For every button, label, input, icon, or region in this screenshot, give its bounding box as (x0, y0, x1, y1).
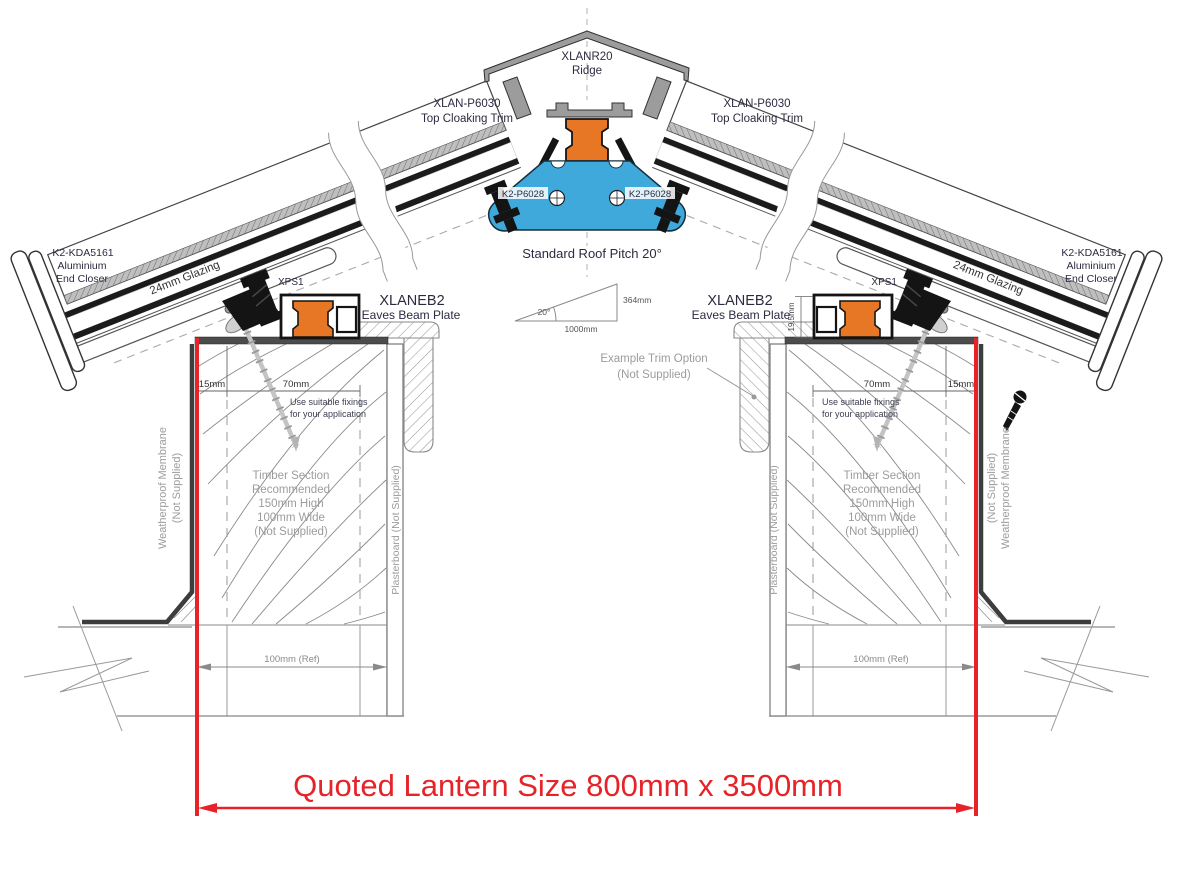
eaves-beam-part-right: XLANEB2 (707, 293, 772, 309)
dim-70mm-right: 70mm (864, 379, 890, 390)
eaves-beam-part-left: XLANEB2 (379, 293, 444, 309)
trim-option-line1: Example Trim Option (600, 353, 707, 365)
membrane-note-2-left: (Not Supplied) (171, 453, 183, 523)
dim-15mm-right: 15mm (948, 379, 974, 390)
timber-note-4-left: 100mm Wide (257, 512, 325, 524)
timber-note-3-right: 150mm High (849, 498, 914, 510)
trim-option-line2: (Not Supplied) (617, 369, 691, 381)
pitch-run: 1000mm (564, 324, 597, 334)
cloaking-trim-part-right: XLAN-P6030 (723, 98, 790, 110)
eaves-beam-name-right: Eaves Beam Plate (692, 308, 791, 322)
dim-15mm-left: 15mm (199, 379, 225, 390)
cloaking-trim-part-left: XLAN-P6030 (433, 98, 500, 110)
membrane-note-1-left: Weatherproof Membrane (157, 427, 169, 549)
fixing-note-2-left: for your application (290, 409, 366, 419)
membrane-note-2-right: (Not Supplied) (986, 453, 998, 523)
eaves-beam-name-left: Eaves Beam Plate (362, 308, 461, 322)
ridge-fixing-label-right: K2-P6028 (629, 189, 671, 200)
timber-note-3-left: 150mm High (258, 498, 323, 510)
end-closer-name-left: End Closer (56, 273, 108, 285)
gasket-label-left: XPS1 (278, 277, 304, 288)
end-closer-part-left: K2-KDA5161 (52, 247, 113, 259)
ridge-part-label: XLANR20 (561, 51, 612, 63)
gasket-label-right: XPS1 (871, 277, 897, 288)
pitch-triangle (515, 284, 617, 321)
timber-note-2-left: Recommended (252, 484, 330, 496)
cloaking-trim-name-right: Top Cloaking Trim (711, 113, 803, 125)
ridge-bolt-hole-left (550, 191, 565, 206)
fixing-note-1-right: Use suitable fixings (822, 397, 900, 407)
timber-note-5-left: (Not Supplied) (254, 526, 328, 538)
pitch-rise: 364mm (623, 295, 651, 305)
timber-note-2-right: Recommended (843, 484, 921, 496)
fixing-note-2-right: for your application (822, 409, 898, 419)
membrane-note-1-right: Weatherproof Membrane (1000, 427, 1012, 549)
end-closer-material-left: Aluminium (57, 260, 106, 272)
ridge-bracket (547, 103, 632, 117)
ridge-name-label: Ridge (572, 65, 602, 77)
ridge-hook-right (643, 77, 671, 119)
kerb-ref-dim-left: 100mm (Ref) (264, 654, 319, 665)
ridge-thermal-break (566, 119, 608, 161)
timber-note-1-left: Timber Section (253, 470, 330, 482)
left-side-assembly (9, 68, 542, 816)
right-side-assembly (631, 68, 1164, 816)
dim-70mm-left: 70mm (283, 379, 309, 390)
timber-note-5-right: (Not Supplied) (845, 526, 919, 538)
timber-note-4-right: 100mm Wide (848, 512, 916, 524)
fixing-note-1-left: Use suitable fixings (290, 397, 368, 407)
end-closer-name-right: End Closer (1065, 273, 1117, 285)
kerb-ref-dim-right: 100mm (Ref) (853, 654, 908, 665)
roof-lantern-section-drawing: XLANR20 Ridge XLAN-P6030 Top Cloaking Tr… (0, 0, 1184, 872)
cloaking-trim-name-left: Top Cloaking Trim (421, 113, 513, 125)
timber-note-1-right: Timber Section (844, 470, 921, 482)
dim-19-5mm: 19.5mm (787, 302, 796, 331)
screw-icon (1003, 391, 1027, 432)
end-closer-part-right: K2-KDA5161 (1061, 247, 1122, 259)
ridge-bolt-hole-right (610, 191, 625, 206)
pitch-angle: 20° (538, 307, 551, 317)
quoted-size-label: Quoted Lantern Size 800mm x 3500mm (293, 768, 843, 803)
end-closer-material-right: Aluminium (1066, 260, 1115, 272)
plasterboard-note-right: Plasterboard (Not Supplied) (768, 465, 780, 595)
drawing-canvas: XLANR20 Ridge XLAN-P6030 Top Cloaking Tr… (0, 0, 1184, 872)
ridge-fixing-label-left: K2-P6028 (502, 189, 544, 200)
plasterboard-note-left: Plasterboard (Not Supplied) (390, 465, 402, 595)
pitch-title: Standard Roof Pitch 20° (522, 246, 662, 261)
